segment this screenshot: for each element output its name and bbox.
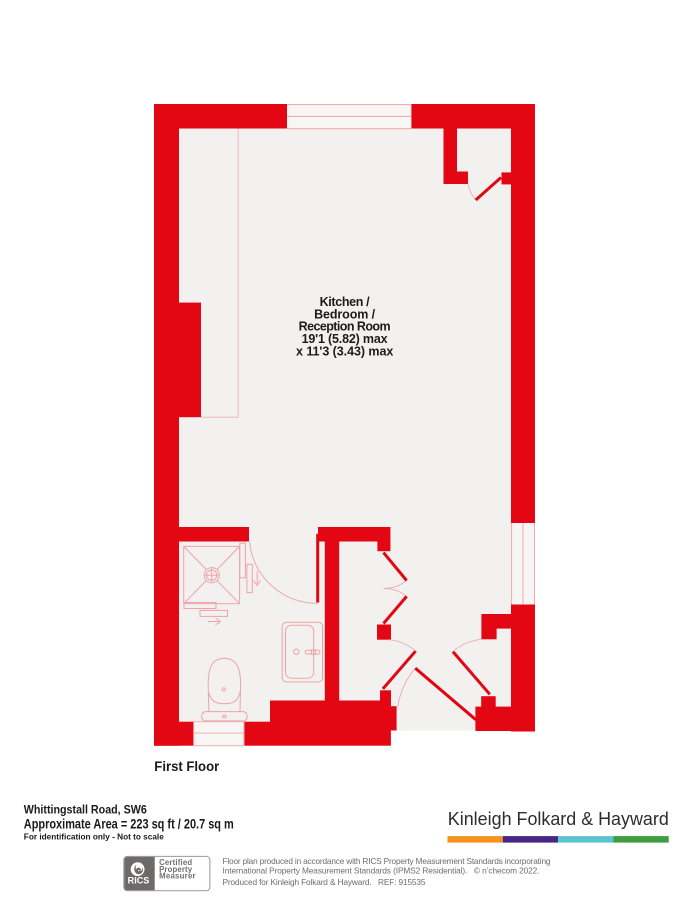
svg-text:Measurer: Measurer bbox=[159, 872, 196, 881]
svg-text:Approximate Area = 223 sq ft /: Approximate Area = 223 sq ft / 20.7 sq m bbox=[24, 817, 234, 832]
svg-text:International Property Measure: International Property Measurement Stand… bbox=[223, 866, 540, 876]
svg-text:Produced for Kinleigh Folkard: Produced for Kinleigh Folkard & Hayward.… bbox=[223, 877, 426, 887]
svg-text:RICS: RICS bbox=[128, 875, 150, 885]
svg-text:x 11'3 (3.43) max: x 11'3 (3.43) max bbox=[296, 344, 393, 358]
svg-text:First Floor: First Floor bbox=[154, 759, 219, 775]
svg-text:For identification only - Not: For identification only - Not to scale bbox=[24, 831, 164, 841]
svg-text:Floor plan produced in accorda: Floor plan produced in accordance with R… bbox=[223, 856, 551, 866]
svg-text:Kinleigh Folkard & Hayward: Kinleigh Folkard & Hayward bbox=[448, 808, 669, 829]
svg-text:Whittingstall Road, SW6: Whittingstall Road, SW6 bbox=[24, 803, 147, 817]
